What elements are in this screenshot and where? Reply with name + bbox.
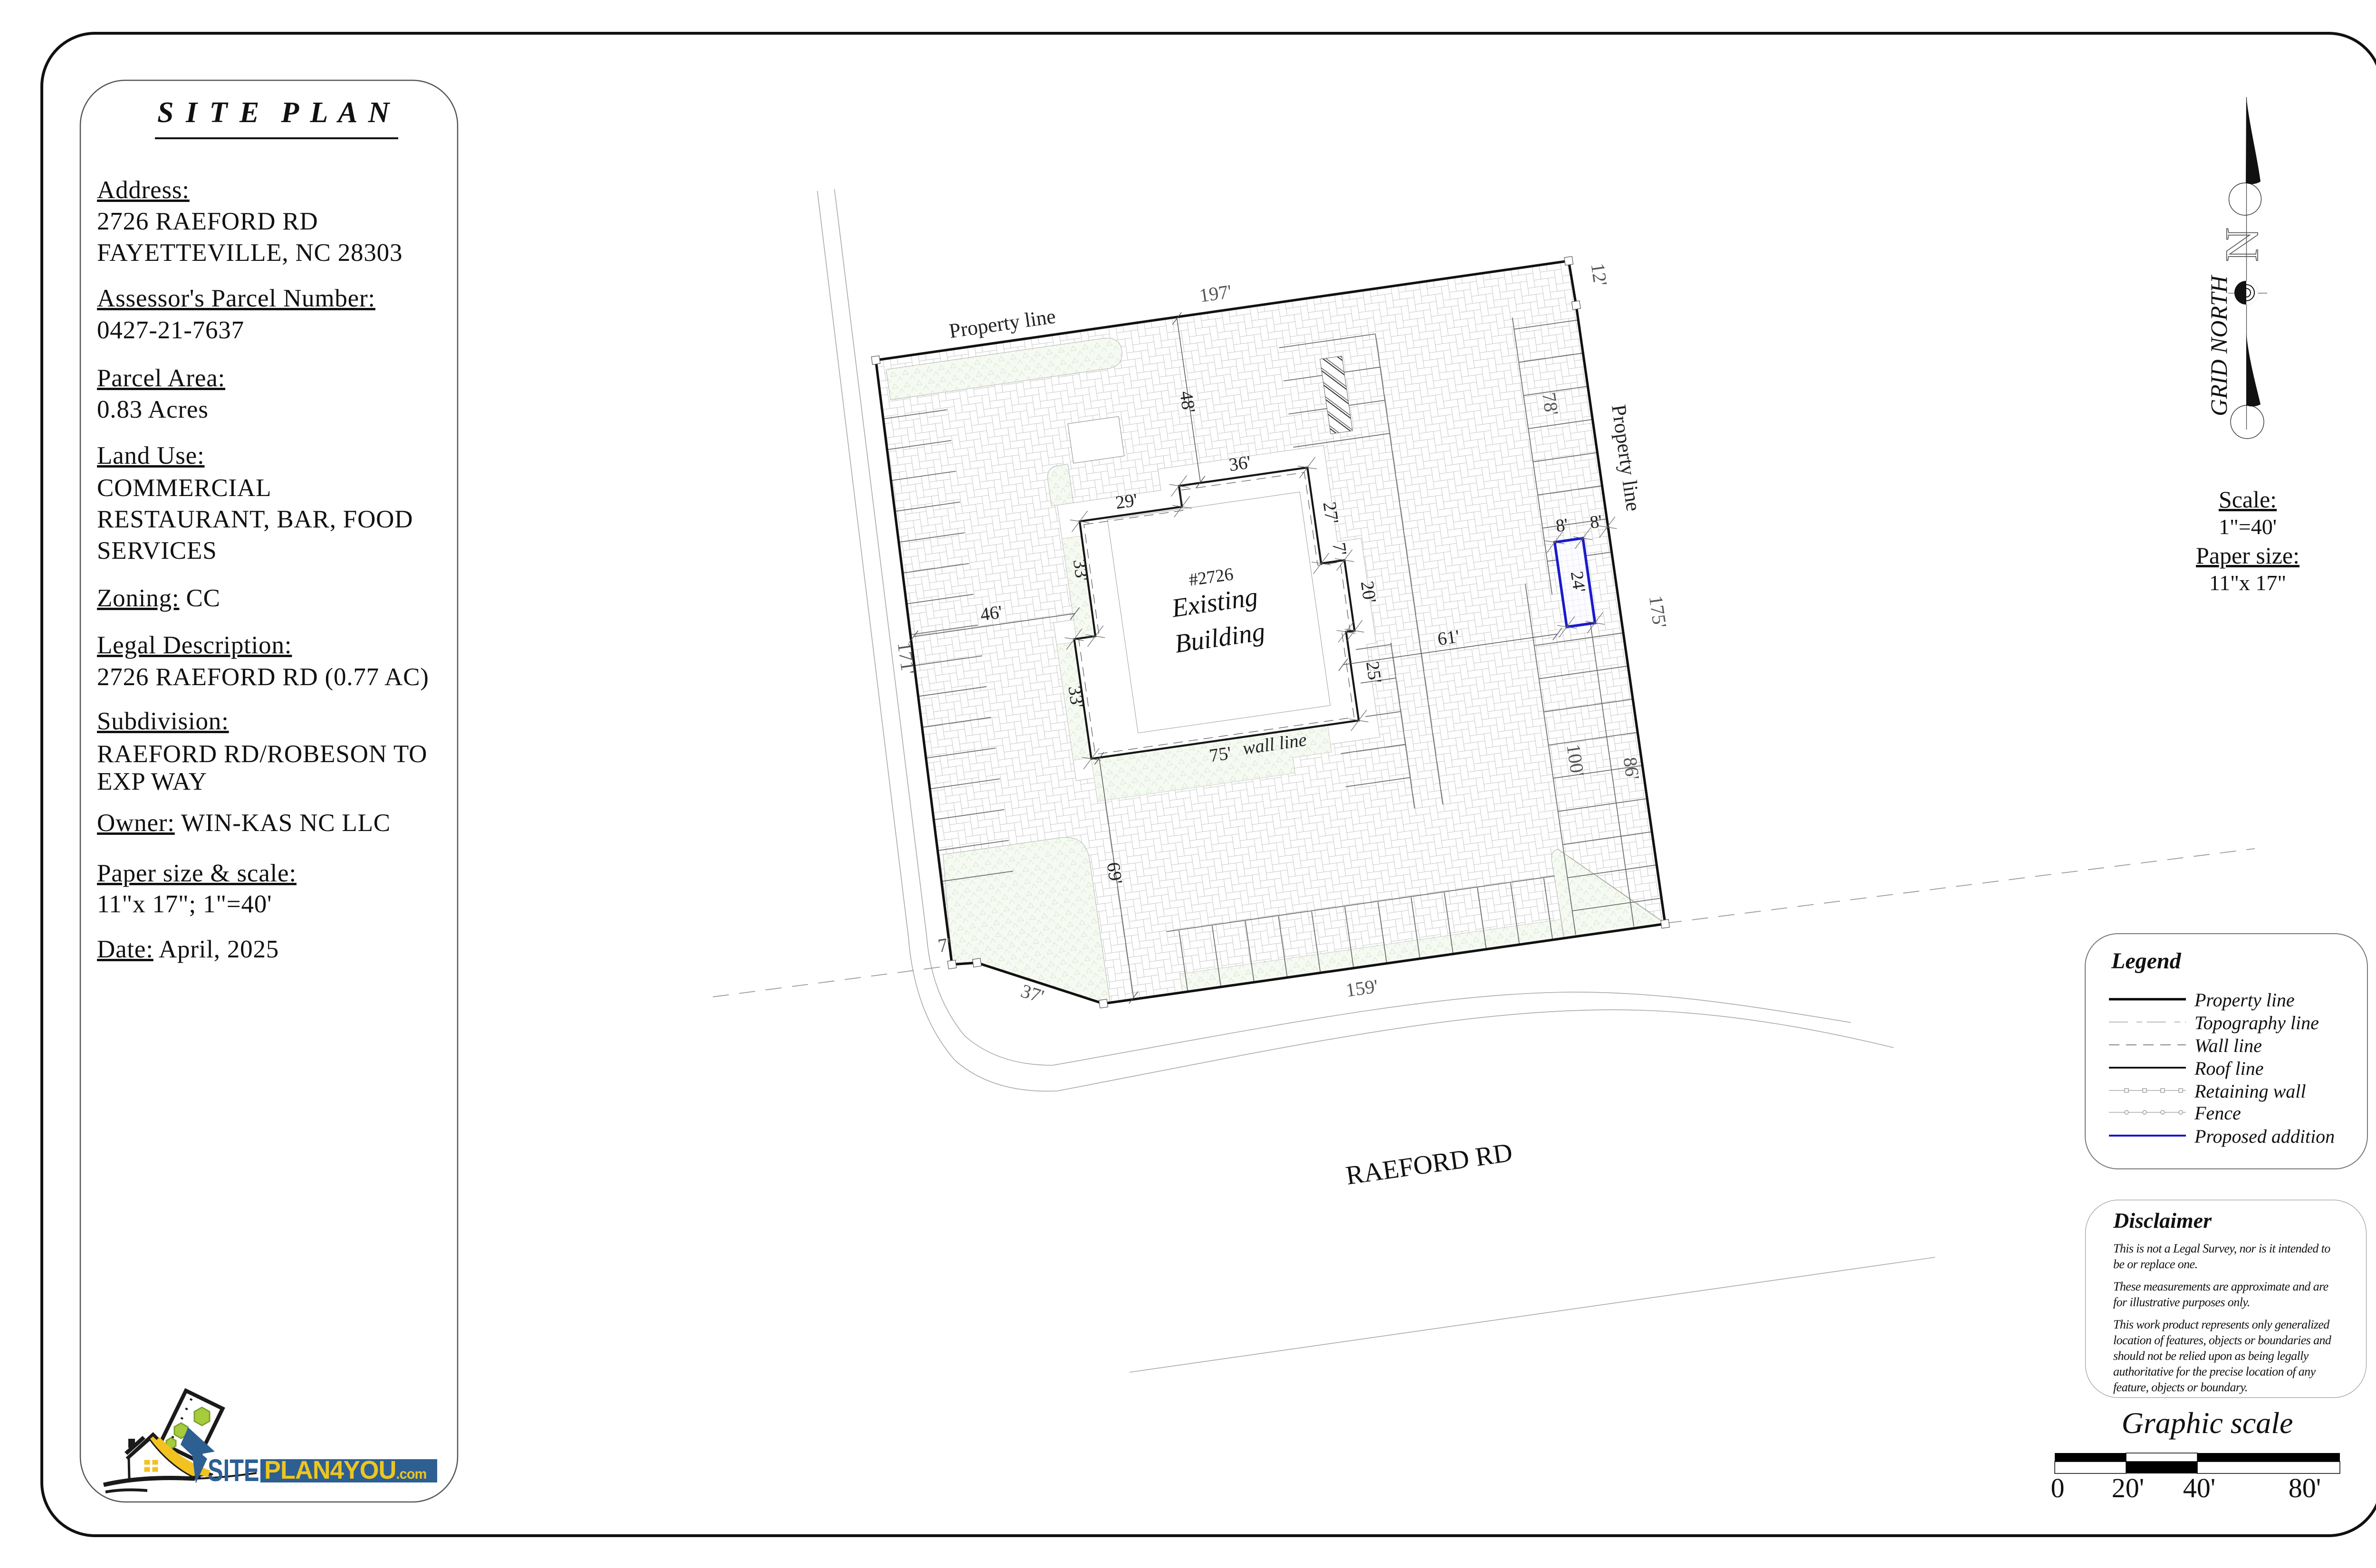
svg-text:100': 100' <box>1562 743 1588 778</box>
svg-text:33': 33' <box>1069 558 1092 583</box>
svg-text:197': 197' <box>1198 281 1233 306</box>
svg-text:46': 46' <box>979 602 1004 625</box>
svg-text:69': 69' <box>1103 861 1126 886</box>
svg-text:RAEFORD RD: RAEFORD RD <box>1344 1138 1514 1190</box>
svg-text:171': 171' <box>893 641 919 676</box>
svg-text:12': 12' <box>1587 262 1611 287</box>
svg-text:86': 86' <box>1619 755 1643 781</box>
svg-text:78': 78' <box>1538 391 1562 417</box>
svg-text:33': 33' <box>1064 685 1088 709</box>
svg-text:175': 175' <box>1645 594 1671 629</box>
svg-text:24': 24' <box>1567 570 1589 594</box>
svg-text:48': 48' <box>1176 390 1199 414</box>
svg-text:GRID NORTH: GRID NORTH <box>2205 274 2232 416</box>
svg-text:SITE: SITE <box>208 1453 259 1488</box>
svg-text:20': 20' <box>1357 580 1380 604</box>
svg-text:25': 25' <box>1362 660 1385 685</box>
svg-text:Property line: Property line <box>1607 403 1645 512</box>
svg-text:27': 27' <box>1319 500 1342 525</box>
svg-text:61': 61' <box>1436 626 1461 650</box>
svg-text:36': 36' <box>1227 452 1252 475</box>
svg-text:29': 29' <box>1114 490 1139 513</box>
svg-text:N: N <box>2215 228 2268 262</box>
svg-text:75': 75' <box>1208 743 1233 766</box>
svg-text:159': 159' <box>1344 975 1380 1001</box>
svg-text:8': 8' <box>1589 512 1603 533</box>
